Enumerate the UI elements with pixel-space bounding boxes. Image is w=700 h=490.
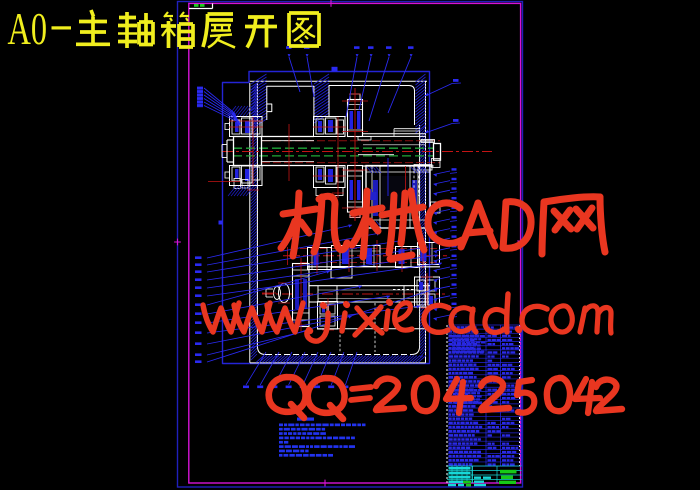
svg-text:A0: A0 — [8, 4, 48, 54]
